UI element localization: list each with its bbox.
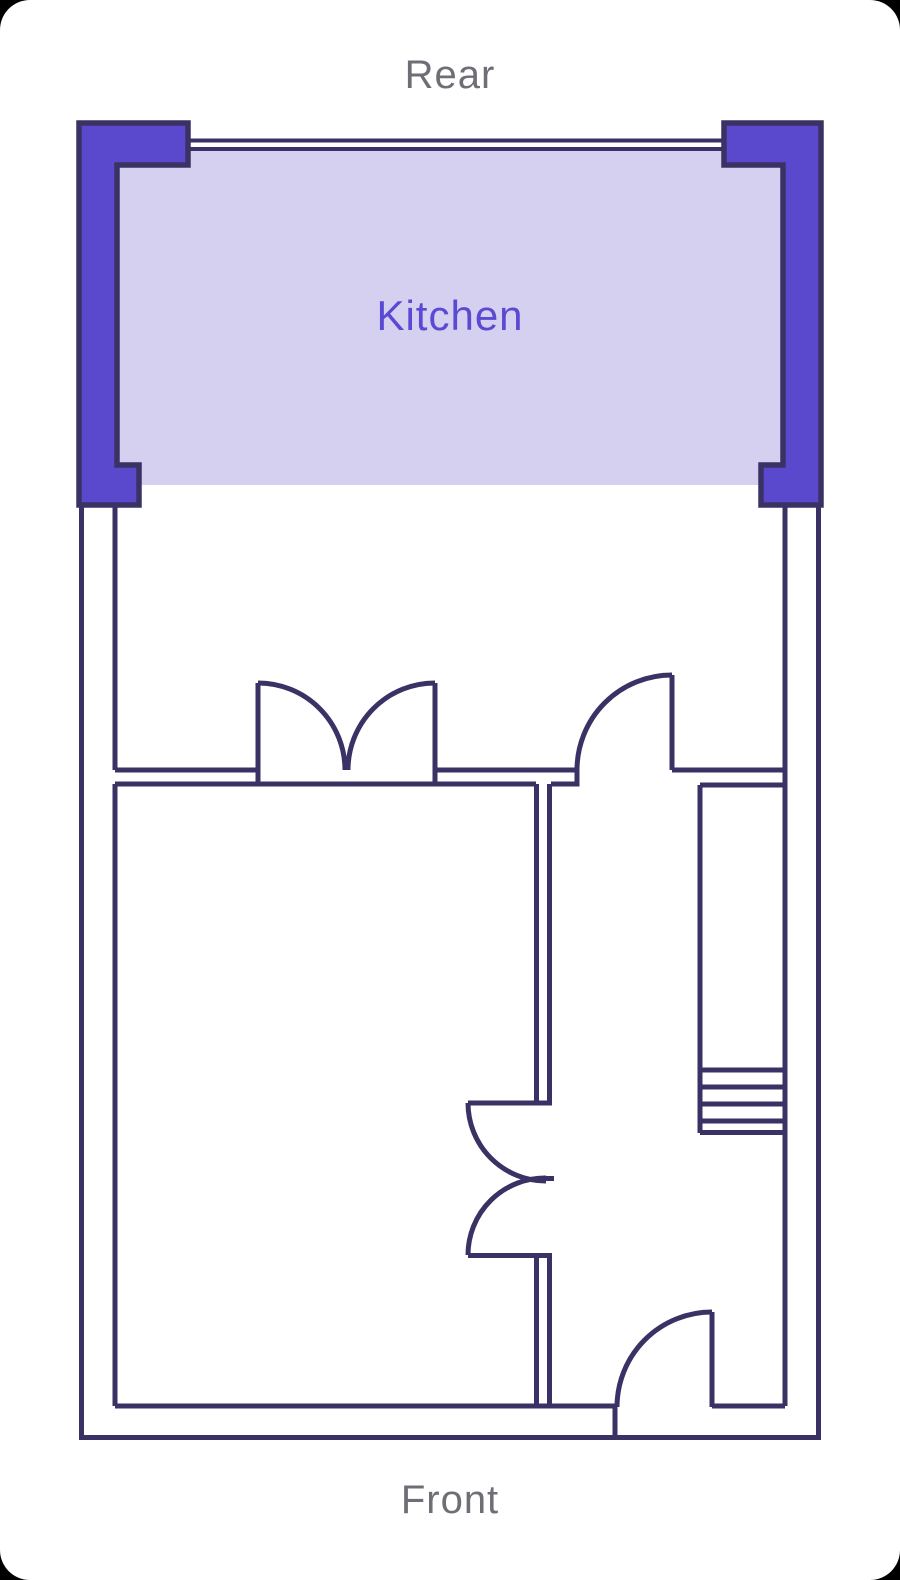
rear-label: Rear xyxy=(405,53,496,97)
staircase xyxy=(700,785,785,1133)
hall-door-symbol xyxy=(577,675,672,770)
kitchen-label: Kitchen xyxy=(376,292,523,339)
front-label: Front xyxy=(401,1478,499,1522)
double-door-symbol xyxy=(258,683,435,784)
front-door-symbol xyxy=(617,1312,712,1407)
screenshot-stage: Rear xyxy=(0,0,900,1580)
mid-wall xyxy=(115,768,785,787)
swing-door-symbol xyxy=(468,1103,554,1256)
interior-wall xyxy=(537,784,550,1408)
rear-window-icon xyxy=(188,141,724,150)
exterior-walls xyxy=(82,503,819,1438)
floorplan-card: Rear xyxy=(0,0,900,1580)
floorplan-diagram: Rear xyxy=(0,0,900,1580)
